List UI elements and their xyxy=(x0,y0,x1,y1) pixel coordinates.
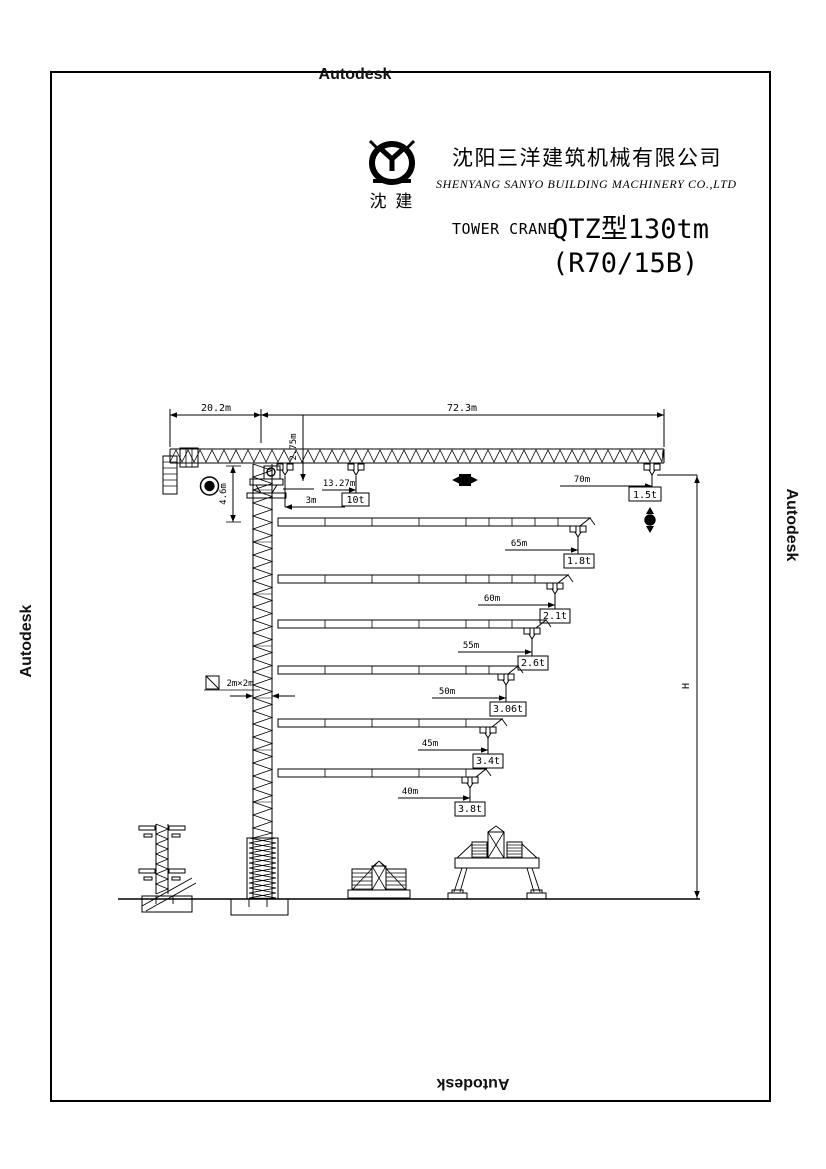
drawing-sheet: Autodesk Autodesk Autodesk Autodesk 沈 建 … xyxy=(0,0,826,1169)
config-radius-label: 50m xyxy=(439,687,455,697)
config-load-box: 3.4t xyxy=(476,756,500,767)
config-radius-label: 65m xyxy=(511,539,527,549)
config-radius-label: 45m xyxy=(422,739,438,749)
config-radius-label: 55m xyxy=(463,641,479,651)
config-radius-label: 40m xyxy=(402,787,418,797)
mast-section-label: 2m×2m xyxy=(226,679,253,689)
config-load-box: 3.8t xyxy=(458,804,482,815)
crane-technical-drawing: 20.2m72.3m2.75m4.6m3m13.27m10t70m1.5tH2m… xyxy=(0,0,826,1169)
min-radius-label: 3m xyxy=(306,496,317,506)
tip-radius-label: 70m xyxy=(574,475,590,485)
config-load-box: 3.06t xyxy=(493,704,523,715)
max-load-radius-label: 13.27m xyxy=(323,479,356,489)
config-load-box: 2.6t xyxy=(521,658,545,669)
tip-load-box: 1.5t xyxy=(633,490,657,501)
counter-jib-length-label: 20.2m xyxy=(201,403,231,414)
height-dim-label: H xyxy=(681,683,692,689)
config-radius-label: 60m xyxy=(484,594,500,604)
config-load-box: 1.8t xyxy=(567,556,591,567)
tower-head-height-label: 4.6m xyxy=(219,483,229,505)
jib-height-label: 2.75m xyxy=(289,433,299,460)
jib-length-label: 72.3m xyxy=(447,403,477,414)
max-load-box: 10t xyxy=(346,495,364,506)
